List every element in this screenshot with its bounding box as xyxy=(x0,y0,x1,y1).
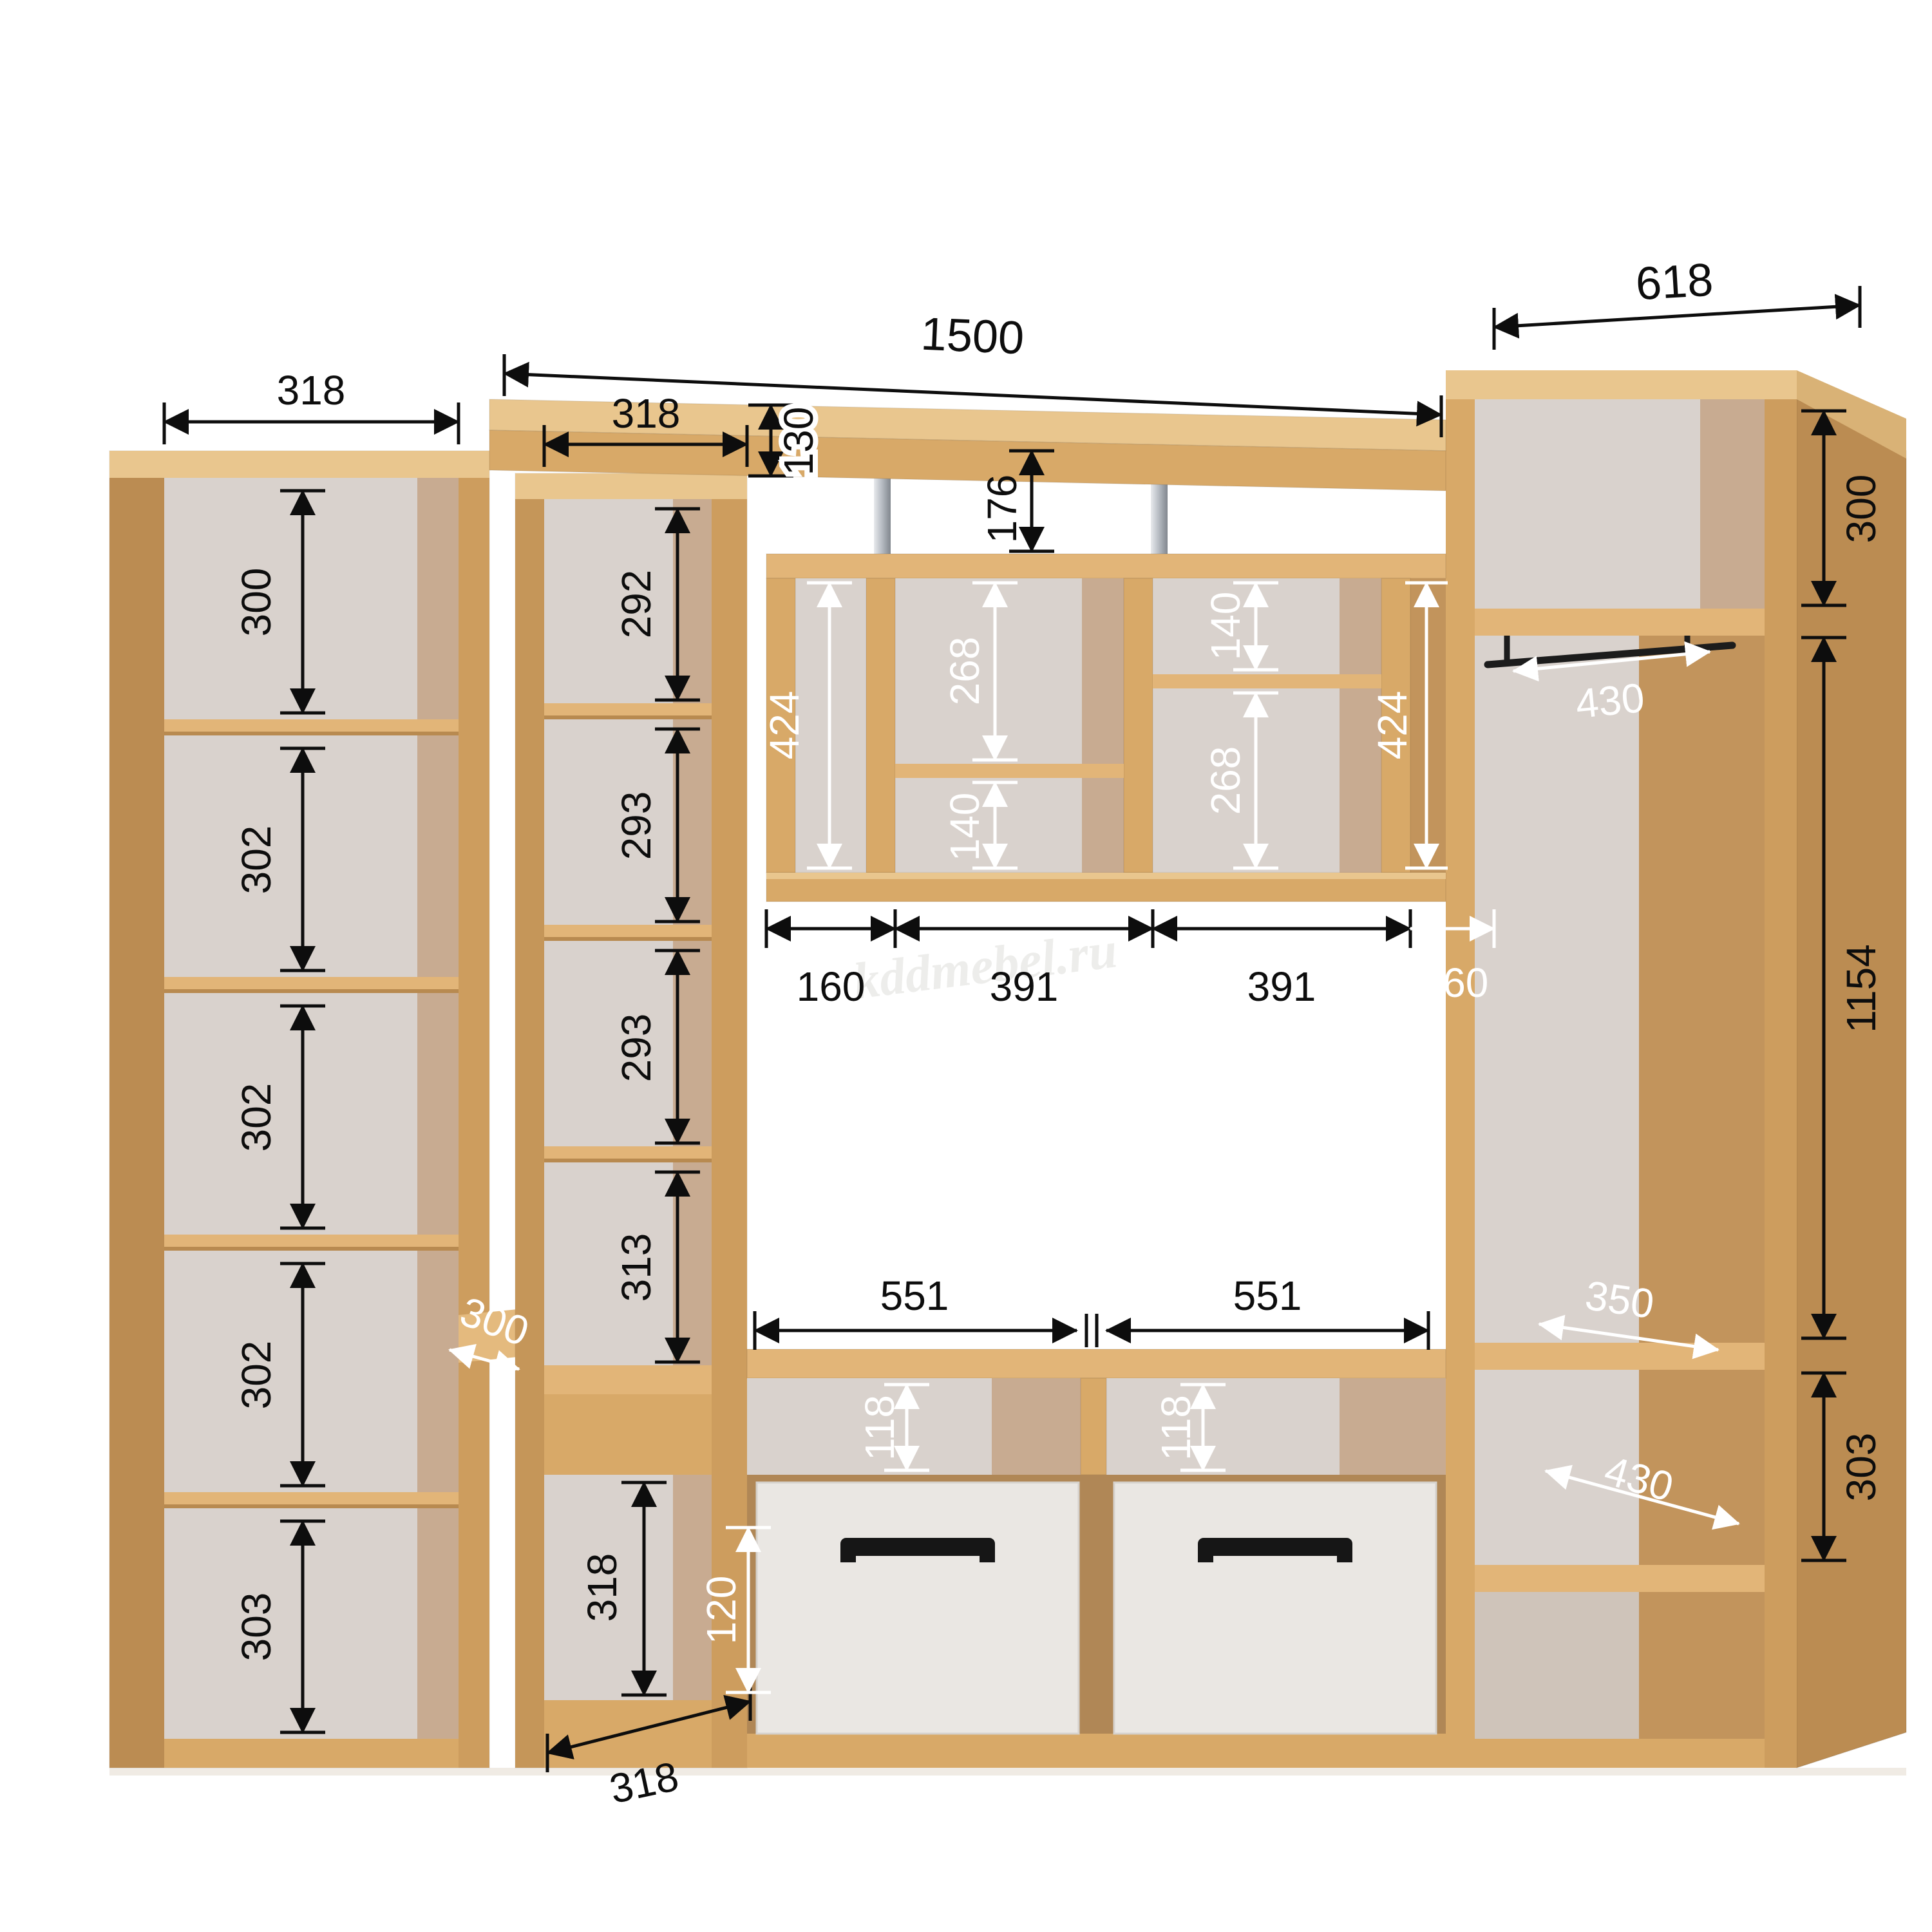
dim-col2-cell-1: 292 xyxy=(613,570,659,639)
wardrobe-interior xyxy=(1475,399,1765,1768)
dim-wardrobe-shelf-depth: 350 xyxy=(1582,1272,1657,1327)
wall-shelves xyxy=(766,554,1446,902)
dim-wardrobe-rail-depth: 430 xyxy=(1573,674,1646,727)
dim-bench-right-niche: 118 xyxy=(1153,1395,1199,1461)
dim-left-cell-5: 303 xyxy=(233,1593,279,1662)
dim-shelves-w2: 391 xyxy=(990,963,1059,1010)
floor-shadow xyxy=(109,1768,1906,1776)
dim-shelves-mid-bottom: 140 xyxy=(942,793,988,862)
dim-shelves-right-bottom: 268 xyxy=(1202,746,1249,815)
dim-top-gap: 176 xyxy=(979,475,1025,544)
dim-wardrobe-top-width: 618 xyxy=(1634,254,1715,310)
dim-left-cell-4: 302 xyxy=(233,1341,279,1410)
dim-left-top-width: 318 xyxy=(277,367,346,413)
drawer-handle-right xyxy=(1198,1538,1352,1556)
dim-drawer-offset: 120 xyxy=(698,1576,744,1645)
dim-wardrobe-side-height: 1154 xyxy=(1838,944,1884,1033)
dim-bench-right-width: 551 xyxy=(1233,1273,1302,1319)
dim-left-cell-2: 302 xyxy=(233,826,279,895)
left-bookcase xyxy=(109,451,489,1768)
dim-bench-left-width: 551 xyxy=(880,1273,949,1319)
dim-left-cell-1: 300 xyxy=(233,568,279,637)
dim-shelves-right-top: 140 xyxy=(1202,592,1249,661)
dim-left-cell-3: 302 xyxy=(233,1083,279,1152)
dim-col2-cell-2: 293 xyxy=(613,791,659,860)
drawer-handle-left xyxy=(840,1538,995,1556)
dim-shelves-w3: 391 xyxy=(1247,963,1316,1010)
dim-shelves-w4: 160 xyxy=(1420,960,1489,1006)
furniture-dimension-diagram: kddmebel.ru xyxy=(0,0,1932,1932)
diagram-canvas: kddmebel.ru xyxy=(0,0,1932,1932)
dim-shelves-left-height: 424 xyxy=(761,691,808,760)
dim-col2-cell-4: 313 xyxy=(613,1233,659,1302)
dim-col2-cell-5: 318 xyxy=(579,1553,625,1622)
dim-top-shelf-width: 1500 xyxy=(920,308,1025,365)
dim-bench-left-niche: 118 xyxy=(857,1395,903,1461)
dim-shelves-mid-top: 268 xyxy=(942,637,988,706)
dim-wardrobe-top-cell: 300 xyxy=(1838,475,1884,544)
drawer-left xyxy=(757,1482,1079,1734)
wardrobe xyxy=(1446,370,1906,1768)
tv-bench xyxy=(747,1349,1446,1768)
dim-top-shelf-height: 130 xyxy=(775,407,822,476)
dim-shelves-right-height: 424 xyxy=(1369,691,1416,760)
left-bookcase-backs xyxy=(164,478,459,1739)
dim-col2-top-width: 318 xyxy=(612,390,681,437)
dim-shelves-w1: 160 xyxy=(797,963,866,1010)
shelf-column-backs xyxy=(544,499,712,1700)
dim-col2-cell-3: 293 xyxy=(613,1014,659,1083)
watermark: kddmebel.ru xyxy=(851,922,1121,1010)
drawer-right xyxy=(1114,1482,1436,1734)
dim-wardrobe-lower-cell: 303 xyxy=(1838,1433,1884,1502)
shelf-column xyxy=(515,473,747,1768)
